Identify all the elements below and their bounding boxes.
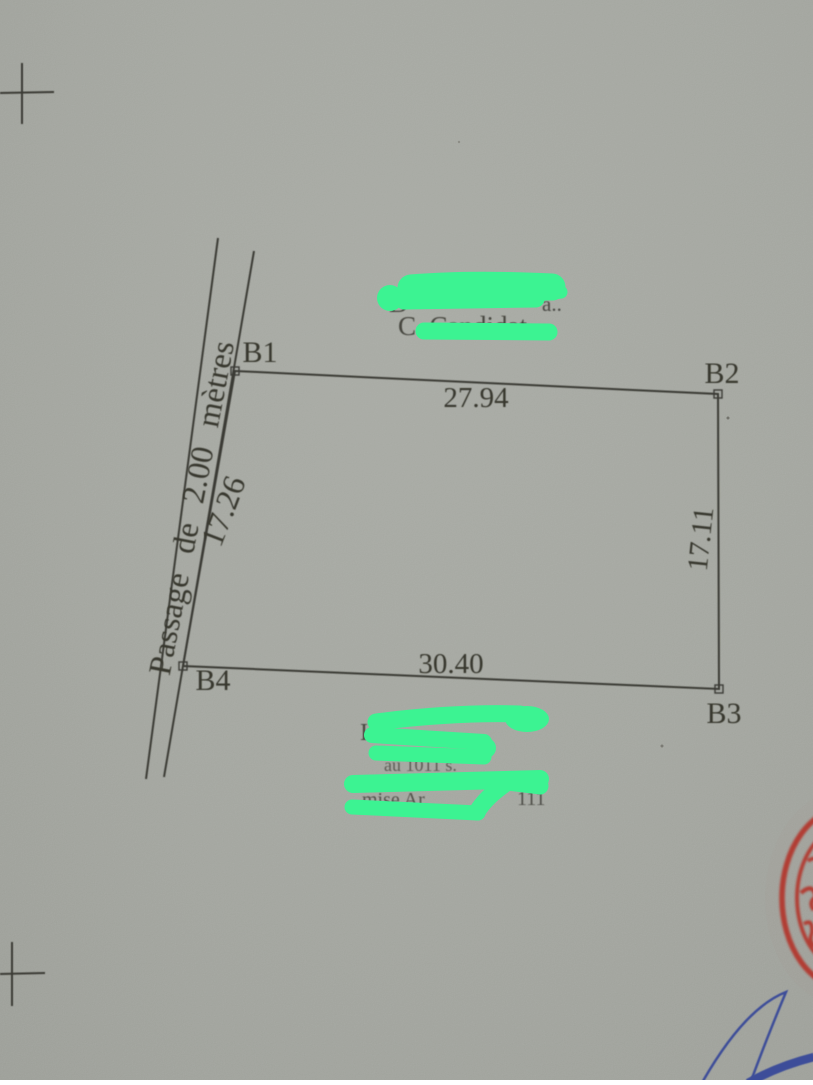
svg-text:B1: B1 (242, 336, 277, 369)
svg-text:B2: B2 (704, 357, 739, 390)
svg-text:17.11: 17.11 (682, 505, 721, 572)
svg-text:B3: B3 (706, 697, 741, 730)
svg-text:27.94: 27.94 (443, 382, 509, 414)
svg-text:30.40: 30.40 (418, 648, 483, 680)
svg-text:B4: B4 (195, 664, 230, 697)
